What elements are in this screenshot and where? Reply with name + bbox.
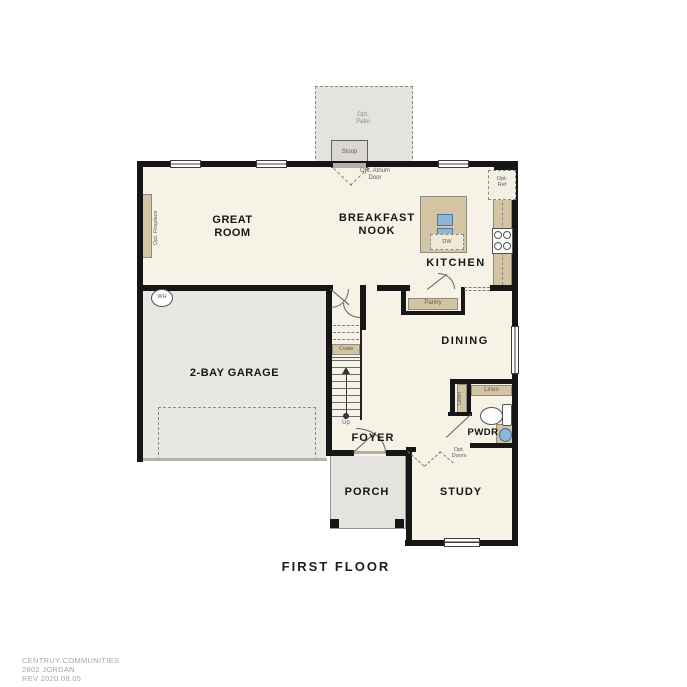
porch-post-right [395, 519, 404, 528]
porch-post-left [330, 519, 339, 528]
wall-linen-top [450, 379, 518, 384]
page-title: FIRST FLOOR [272, 559, 400, 574]
stairs-rail [360, 330, 362, 420]
footer-revision: REV 2020.08.05 [22, 674, 242, 684]
foyer-label: FOYER [351, 432, 395, 445]
coats-label: Coats [332, 346, 360, 352]
stoop-label: Stoop [334, 149, 365, 156]
breakfast-nook-label: BREAKFAST NOOK [337, 212, 417, 238]
window-dining [511, 326, 519, 374]
water-heater-label: WH [151, 294, 173, 300]
wall-left [137, 161, 143, 462]
coats-dash-1 [333, 325, 359, 326]
wall-study-left [406, 450, 412, 546]
wall-linen-left [450, 379, 455, 415]
opt-patio-label: Opt. Patio [351, 112, 375, 126]
cased-opening-dash-2 [464, 290, 490, 291]
wall-pwdr-bottom [470, 443, 518, 448]
up-arrow-head [342, 367, 350, 374]
window-breakfast-nook [438, 160, 469, 168]
pantry-label: Pantry [410, 300, 456, 307]
wall-kitchen-southeast [490, 285, 518, 291]
powder-label: PWDR [462, 427, 504, 438]
burner-2 [503, 231, 511, 239]
toilet-bowl [480, 407, 503, 425]
garage-door-dashed [158, 407, 316, 460]
great-room-label: GREAT ROOM [205, 214, 260, 240]
opt-atrium-door-label: Opt. Atrium Door [357, 168, 393, 182]
burner-3 [494, 242, 502, 250]
up-arrow-dot [343, 413, 349, 419]
floorplan-canvas: Opt. Patio Stoop Opt. Atrium Door Opt. F… [0, 0, 687, 687]
dining-label: DINING [436, 335, 494, 348]
linen-cabinet-label: Linen [471, 387, 512, 394]
stairs-top-line [332, 357, 361, 358]
opt-doors-label: Opt. Doors [448, 447, 470, 460]
garage-label: 2-BAY GARAGE [172, 367, 297, 380]
wall-pantry-bottom [401, 311, 465, 315]
study-label: STUDY [435, 486, 487, 499]
toilet-tank [502, 404, 512, 426]
wall-stairs-east [360, 285, 366, 330]
burner-1 [494, 231, 502, 239]
window-great-room-2 [256, 160, 287, 168]
opt-fireplace-label: Opt. Fireplace [153, 198, 167, 258]
cased-opening-dash-1 [464, 287, 490, 288]
dishwasher-label: DW [435, 239, 459, 245]
wall-pantry-right [461, 287, 465, 315]
window-great-room-1 [170, 160, 201, 168]
garage-door-sill [143, 458, 327, 461]
opt-ref-label: Opt. Ref [493, 176, 511, 189]
window-study [444, 538, 480, 547]
up-label: Up [337, 420, 355, 427]
burner-4 [503, 242, 511, 250]
island-sink-top [437, 214, 453, 226]
coats-dash-3 [333, 339, 359, 340]
linen-closet-label: Linen [457, 385, 467, 412]
kitchen-label: KITCHEN [420, 257, 492, 270]
coats-dash-2 [333, 332, 359, 333]
up-arrow-line [346, 374, 347, 416]
porch-label: PORCH [341, 486, 393, 499]
